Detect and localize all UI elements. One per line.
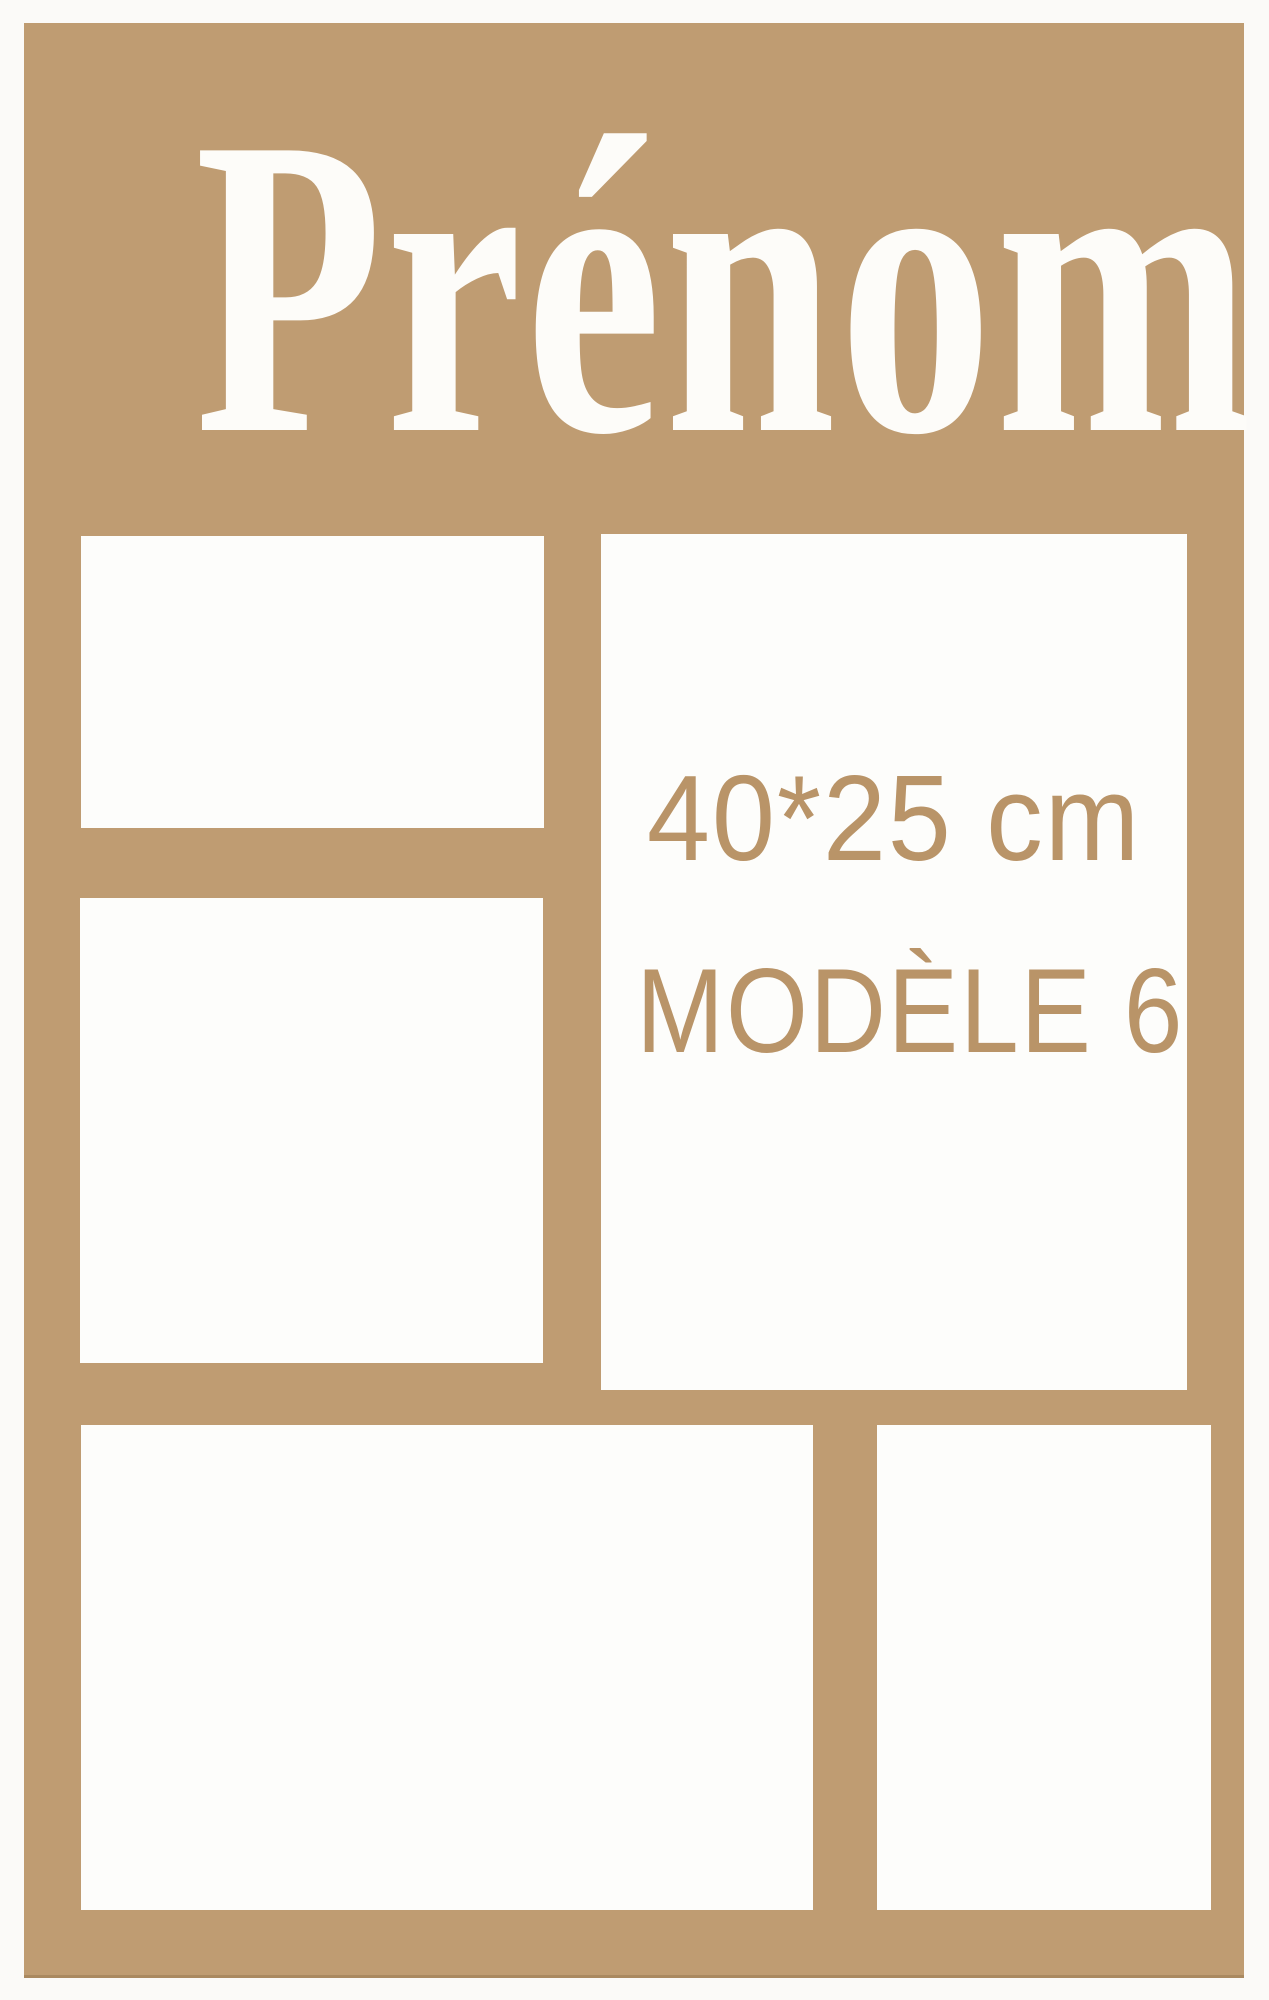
wooden-name-board: Prénom 40*25 cm MODÈLE 6 [24,23,1244,1978]
photo-slot-middle-left [80,898,543,1363]
board-title: Prénom [195,73,1073,500]
product-mockup: Prénom 40*25 cm MODÈLE 6 [0,0,1269,2000]
model-label: MODÈLE 6 [636,951,1152,1071]
size-label: 40*25 cm [622,757,1167,879]
photo-slot-right-tall: 40*25 cm MODÈLE 6 [601,534,1187,1390]
photo-slot-top-left [81,536,544,828]
photo-slot-bottom-right [877,1425,1211,1910]
photo-slot-bottom-left [81,1425,813,1910]
